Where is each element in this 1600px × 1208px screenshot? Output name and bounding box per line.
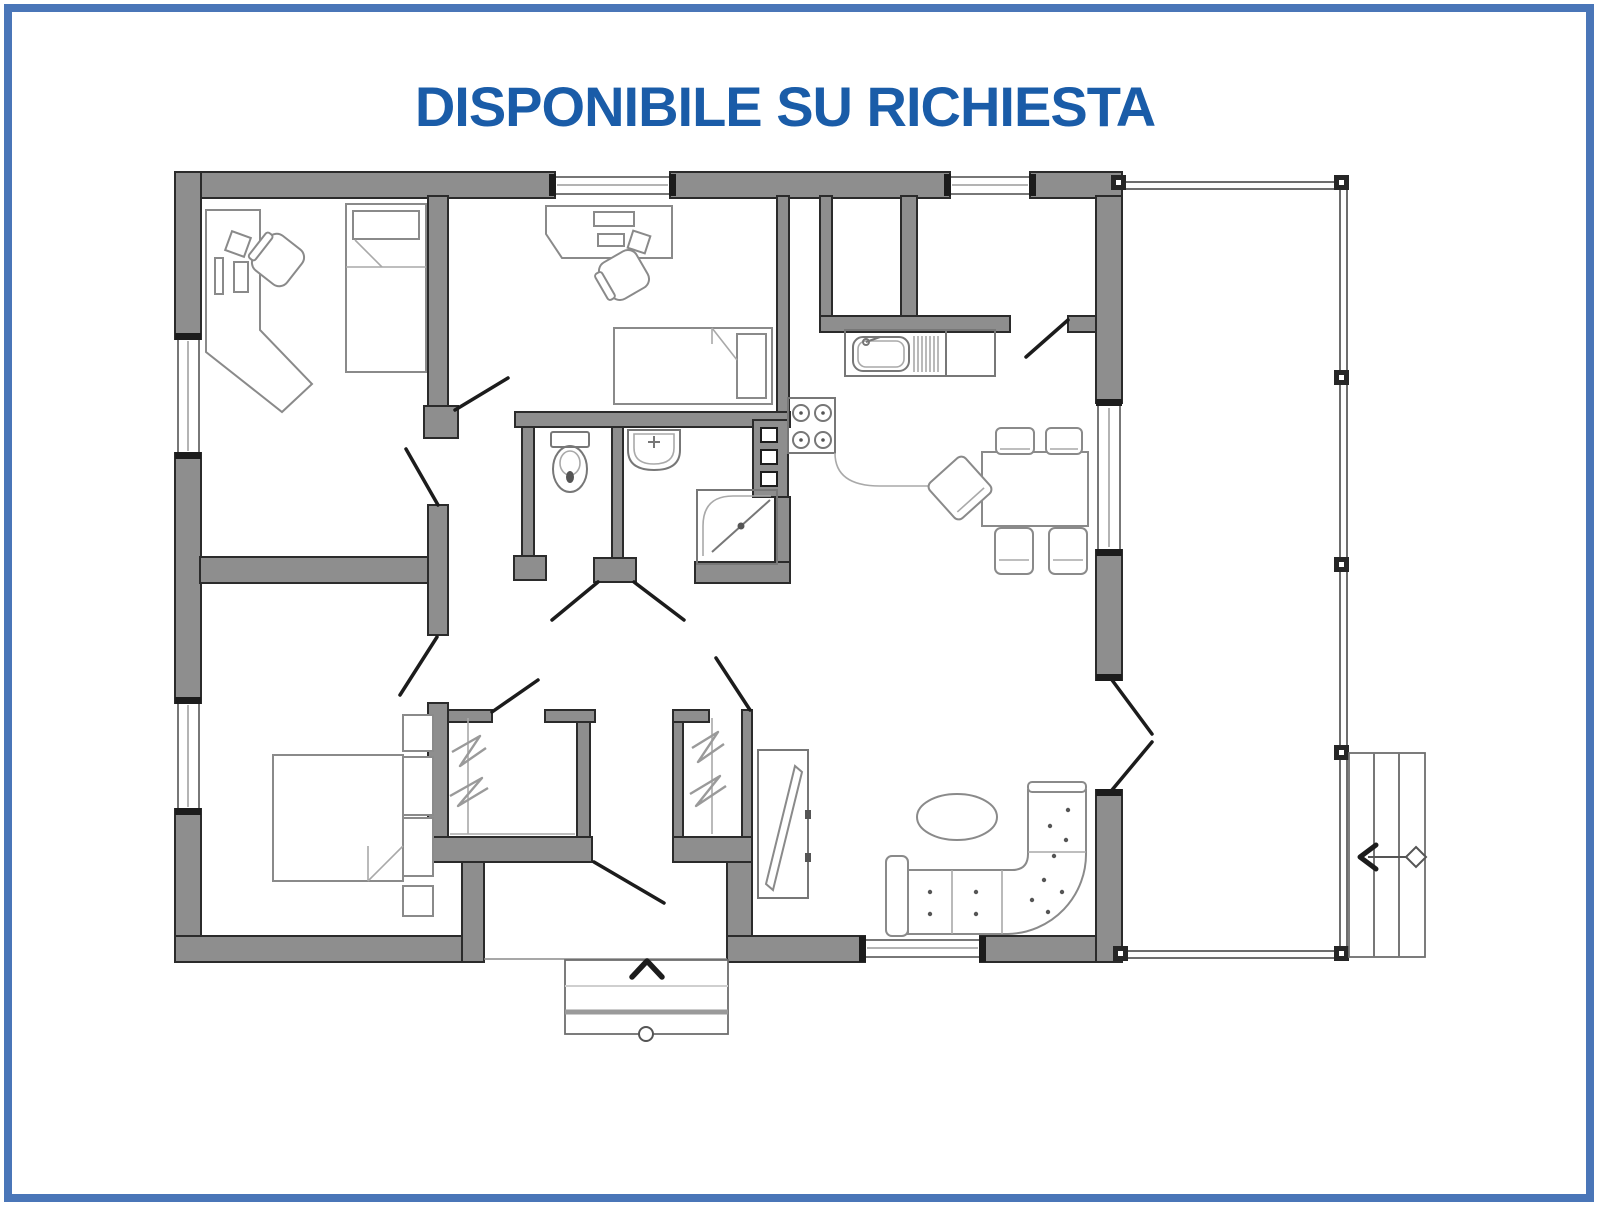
terrace-stairs-icon [1349, 753, 1426, 957]
monitor-icon [594, 212, 634, 226]
floor-plan-page: DISPONIBILE SU RICHIESTA [0, 0, 1600, 1208]
living-room-furniture [758, 750, 1086, 936]
nightstand-icon [403, 886, 433, 916]
floor-plan-drawing [0, 0, 1600, 1208]
corner-shower-icon [697, 490, 777, 564]
dining-chair-icon [1046, 428, 1082, 454]
keyboard-icon [598, 234, 624, 246]
dining-table-icon [982, 452, 1088, 526]
corner-desk-icon [206, 210, 312, 412]
stove-icon [788, 398, 835, 453]
tv-panel-icon [758, 750, 811, 898]
nightstand-icon [403, 715, 433, 751]
single-bed-icon [346, 204, 426, 372]
oval-coffee-table-icon [917, 794, 997, 840]
dining-furniture [926, 428, 1088, 574]
bedroom-1-furniture [206, 204, 426, 412]
bedroom-3-furniture [273, 715, 433, 916]
kitchen-sink-icon [845, 330, 995, 376]
entry-steps-icon [565, 960, 728, 1041]
monitor-icon [215, 258, 223, 294]
wardrobe-hangers-icon [690, 718, 726, 834]
washbasin-icon [628, 430, 680, 470]
dining-chair-icon [996, 428, 1034, 454]
single-bed-icon [614, 328, 772, 404]
wc-bathroom-fixtures [551, 430, 777, 564]
terrace-post-icon [1111, 175, 1349, 961]
double-bed-icon [273, 755, 433, 881]
bedroom-2-furniture [546, 206, 772, 404]
toilet-icon [551, 432, 589, 492]
wardrobe-hangers-icon [450, 718, 575, 834]
dining-chair-icon [995, 528, 1033, 574]
terrace [1111, 175, 1426, 961]
dining-chair-icon [1049, 528, 1087, 574]
utility-column-icon [753, 420, 788, 497]
keyboard-icon [234, 262, 248, 292]
